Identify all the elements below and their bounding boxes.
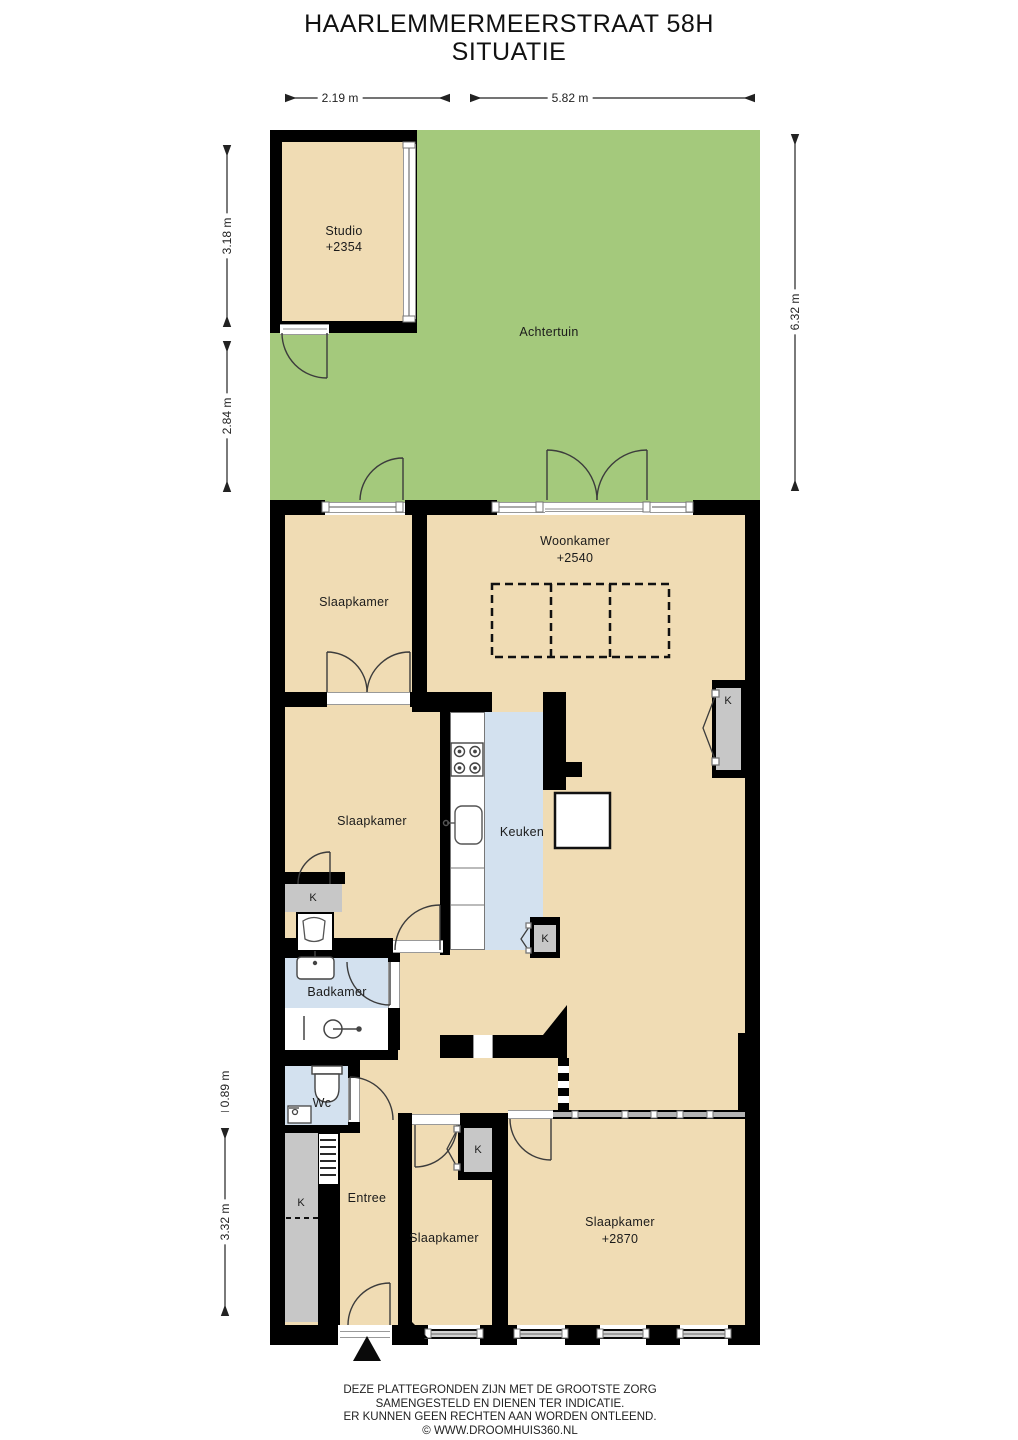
- disclaimer-line: SAMENGESTELD EN DIENEN TER INDICATIE.: [0, 1398, 1000, 1412]
- window-center-lines: [283, 146, 726, 1334]
- room-level-living: +2540: [557, 551, 594, 565]
- kitchen-unit-icon: [555, 793, 610, 848]
- door-arc: [415, 1125, 457, 1167]
- dim-garden-lower-height: 2.84 m: [220, 394, 234, 439]
- washbasin-icon: [297, 951, 334, 979]
- door-arc: [510, 1119, 551, 1160]
- disclaimer-line: © WWW.DROOMHUIS360.NL: [0, 1425, 1000, 1439]
- door-arc: [547, 450, 597, 500]
- disclaimer: DEZE PLATTEGRONDEN ZIJN MET DE GROOTSTE …: [0, 1384, 1000, 1438]
- counter-divisions: [450, 868, 485, 905]
- door-arc: [348, 1283, 390, 1325]
- room-label-bedroom-right: Slaapkamer: [585, 1215, 655, 1229]
- room-label-studio: Studio: [325, 224, 362, 238]
- stove-icon: [451, 743, 483, 776]
- closet-fixture-icon: [303, 918, 325, 942]
- stair-treads: [320, 1140, 336, 1175]
- closet-label: K: [297, 1197, 304, 1209]
- room-label-living: Woonkamer: [540, 534, 610, 548]
- door-arc: [367, 652, 410, 692]
- floorplan: HAARLEMMERMEERSTRAAT 58H SITUATIE: [0, 0, 1018, 1440]
- room-label-entry: Entree: [348, 1191, 387, 1205]
- closet-label: K: [724, 695, 731, 707]
- closet-label: K: [474, 1144, 481, 1156]
- dim-wc-height: 0.89 m: [218, 1067, 232, 1112]
- wc-basin-icon: [288, 1106, 311, 1123]
- title-address: HAARLEMMERMEERSTRAAT 58H: [0, 10, 1018, 38]
- door-arc: [597, 450, 647, 500]
- room-level-bedroom-right: +2870: [602, 1232, 639, 1246]
- door-arc: [298, 852, 330, 884]
- plan-overlay: [0, 0, 1018, 1440]
- kitchen-sink-icon: [444, 806, 483, 844]
- disclaimer-line: DEZE PLATTEGRONDEN ZIJN MET DE GROOTSTE …: [0, 1384, 1000, 1398]
- room-label-kitchen: Keuken: [500, 825, 544, 839]
- door-arc: [350, 1077, 393, 1120]
- dim-studio-width: 2.19 m: [318, 91, 363, 105]
- wall-diagonal: [543, 1005, 567, 1035]
- dimension-lines: [225, 98, 795, 1316]
- shower-icon: [304, 1016, 361, 1040]
- wall-diagonal: [402, 1312, 428, 1338]
- folding-doors: [447, 690, 719, 1170]
- door-arc: [282, 333, 327, 378]
- closet-label: K: [541, 933, 548, 945]
- window-mullions: [322, 142, 731, 1338]
- room-label-bedroom-small: Slaapkamer: [409, 1231, 479, 1245]
- room-level-studio: +2354: [326, 240, 363, 254]
- entrance-marker-icon: [353, 1336, 381, 1361]
- room-label-bathroom: Badkamer: [307, 985, 366, 999]
- door-arc: [360, 458, 403, 500]
- room-label-bedroom-top: Slaapkamer: [319, 595, 389, 609]
- door-arc: [395, 905, 440, 950]
- dim-garden-full-height: 6.32 m: [788, 290, 802, 335]
- dim-front-height: 3.32 m: [218, 1200, 232, 1245]
- dim-garden-width: 5.82 m: [548, 91, 593, 105]
- title-subtitle: SITUATIE: [0, 38, 1018, 66]
- closet-label: K: [309, 892, 316, 904]
- room-label-bedroom-mid: Slaapkamer: [337, 814, 407, 828]
- disclaimer-line: ER KUNNEN GEEN RECHTEN AAN WORDEN ONTLEE…: [0, 1411, 1000, 1425]
- page-title: HAARLEMMERMEERSTRAAT 58H SITUATIE: [0, 10, 1018, 66]
- room-label-garden: Achtertuin: [519, 325, 578, 339]
- door-arc: [327, 652, 367, 692]
- dim-studio-height: 3.18 m: [220, 214, 234, 259]
- room-label-toilet: Wc: [313, 1096, 332, 1110]
- vide-dashed-outline: [492, 584, 669, 657]
